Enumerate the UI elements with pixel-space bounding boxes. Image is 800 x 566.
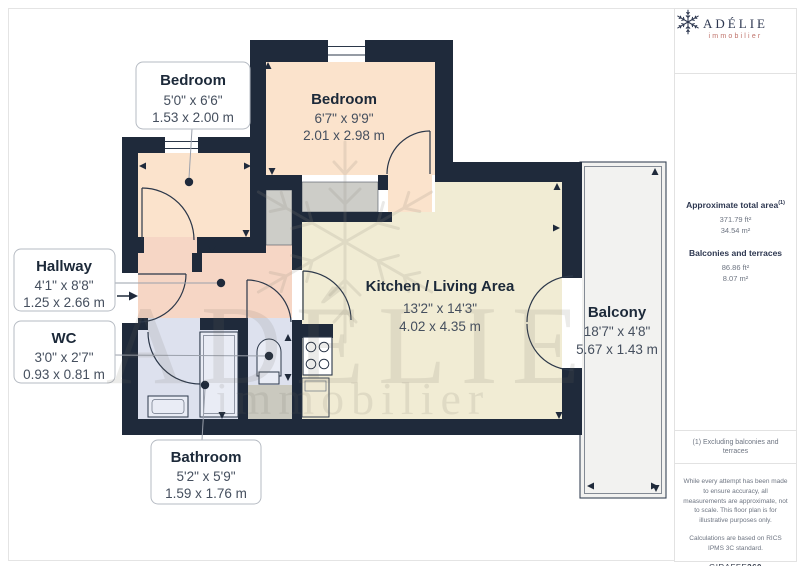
svg-text:2.01 x 2.98 m: 2.01 x 2.98 m — [303, 128, 385, 143]
living-floor-upper — [435, 182, 562, 222]
balconies-area-m: 8.07 m² — [675, 274, 796, 283]
svg-text:Bedroom: Bedroom — [160, 72, 226, 89]
sidebar-disclaimer-box: While every attempt has been made to ens… — [674, 463, 797, 562]
svg-text:Bedroom: Bedroom — [311, 91, 377, 108]
svg-text:3'0" x 2'7": 3'0" x 2'7" — [34, 350, 93, 365]
label-bathroom: Bathroom 5'2" x 5'9" 1.59 x 1.76 m — [151, 440, 261, 504]
watermark-sub: immobilier — [216, 373, 490, 424]
svg-text:0.93 x 0.81 m: 0.93 x 0.81 m — [23, 367, 105, 382]
svg-text:4'1" x 8'8": 4'1" x 8'8" — [34, 278, 93, 293]
balconies-heading: Balconies and terraces — [675, 248, 796, 258]
label-bedroom-1: Bedroom 5'0" x 6'6" 1.53 x 2.00 m — [136, 62, 250, 129]
sidebar-footnote-box: (1) Excluding balconies and terraces — [674, 430, 797, 464]
approx-area-m: 34.54 m² — [675, 226, 796, 235]
svg-text:WC: WC — [52, 330, 77, 347]
living-floor-passage — [392, 212, 436, 222]
svg-text:Hallway: Hallway — [36, 258, 93, 275]
disclaimer-text: While every attempt has been made to ens… — [682, 477, 789, 526]
giraffe360-brand: GIRAFFE360 — [682, 562, 789, 566]
sidebar-area-box: Approximate total area(1) 371.79 ft² 34.… — [674, 73, 797, 431]
svg-text:1.25 x 2.66 m: 1.25 x 2.66 m — [23, 295, 105, 310]
bedroom-2-window — [328, 40, 365, 62]
svg-text:5'0" x 6'6": 5'0" x 6'6" — [163, 93, 222, 108]
svg-text:5'2" x 5'9": 5'2" x 5'9" — [176, 469, 235, 484]
footnote-text: (1) Excluding balconies and terraces — [681, 438, 790, 456]
logo-snowflake-icon — [675, 9, 701, 35]
svg-text:Bathroom: Bathroom — [171, 449, 242, 466]
bedroom-1-window — [165, 137, 198, 153]
standard-text: Calculations are based on RICS IPMS 3C s… — [682, 534, 789, 554]
label-hallway: Hallway 4'1" x 8'8" 1.25 x 2.66 m — [14, 249, 115, 311]
sidebar-logo-box: ADÉLIE immobilier — [674, 8, 797, 74]
floorplan-page: Bedroom 5'0" x 6'6" 1.53 x 2.00 m Bedroo… — [0, 0, 800, 566]
bedroom-1-floor — [138, 153, 250, 237]
footnote-marker: (1) — [778, 200, 785, 206]
balconies-area-ft: 86.86 ft² — [675, 263, 796, 272]
svg-text:6'7" x 9'9": 6'7" x 9'9" — [314, 111, 373, 126]
label-bedroom-2: Bedroom 6'7" x 9'9" 2.01 x 2.98 m — [303, 91, 385, 143]
svg-text:1.53 x 2.00 m: 1.53 x 2.00 m — [152, 110, 234, 125]
approx-total-area-heading: Approximate total area(1) — [675, 200, 796, 210]
svg-text:1.59 x 1.76 m: 1.59 x 1.76 m — [165, 486, 247, 501]
bedroom-1-door-opening — [144, 237, 197, 253]
label-wc: WC 3'0" x 2'7" 0.93 x 0.81 m — [14, 321, 115, 383]
svg-text:Balcony: Balcony — [588, 304, 647, 321]
approx-area-ft: 371.79 ft² — [675, 215, 796, 224]
